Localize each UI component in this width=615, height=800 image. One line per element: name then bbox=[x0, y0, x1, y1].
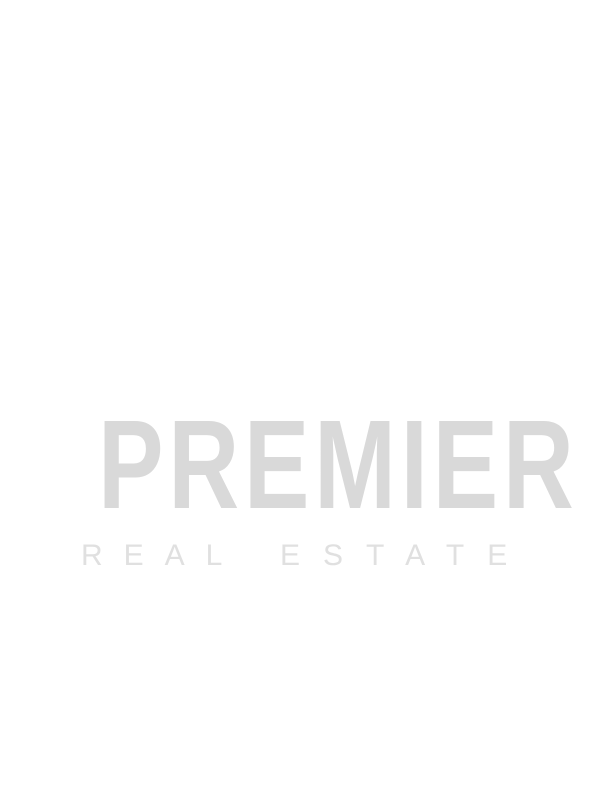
svg-text:PREMIER: PREMIER bbox=[98, 394, 579, 535]
svg-text:ESTATE: ESTATE bbox=[280, 539, 530, 572]
svg-text:REAL: REAL bbox=[81, 539, 243, 572]
